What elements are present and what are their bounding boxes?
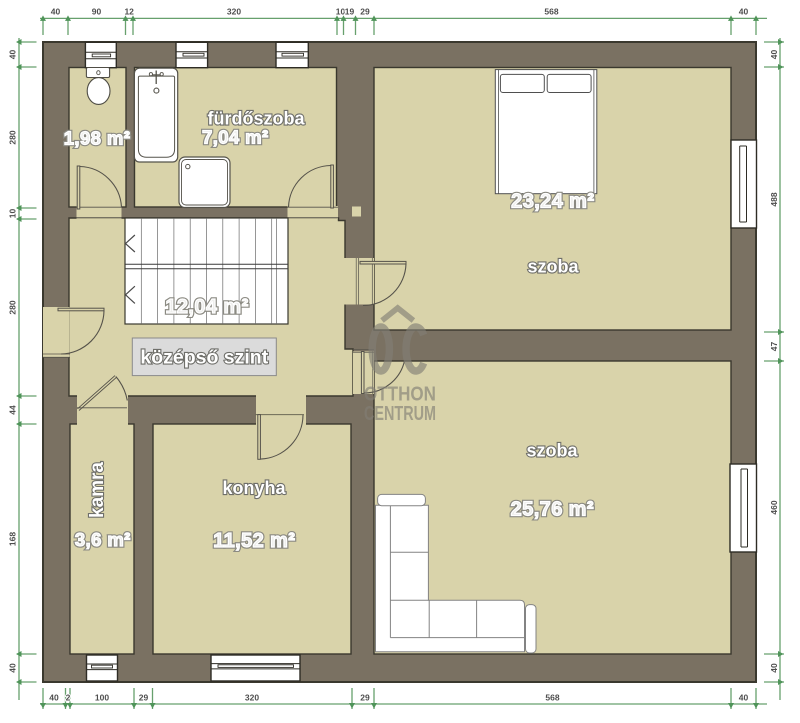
svg-text:25,76 m²: 25,76 m² (511, 499, 594, 521)
svg-text:100: 100 (95, 693, 109, 703)
svg-text:40: 40 (49, 693, 59, 703)
svg-text:40: 40 (739, 693, 749, 703)
svg-text:fürdőszoba: fürdőszoba (208, 109, 306, 129)
svg-text:CENTRUM: CENTRUM (364, 403, 436, 425)
svg-text:29: 29 (360, 7, 370, 17)
svg-text:40: 40 (769, 663, 779, 673)
svg-text:40: 40 (769, 50, 779, 60)
svg-text:568: 568 (544, 7, 558, 17)
svg-text:10: 10 (8, 209, 18, 219)
svg-text:7,04 m²: 7,04 m² (202, 127, 269, 148)
svg-text:168: 168 (8, 532, 18, 546)
svg-text:40: 40 (8, 663, 18, 673)
svg-text:320: 320 (227, 7, 241, 17)
svg-text:szoba: szoba (527, 257, 579, 277)
svg-text:280: 280 (8, 300, 18, 314)
svg-text:40: 40 (8, 50, 18, 60)
svg-text:44: 44 (8, 405, 18, 415)
svg-text:11,52 m²: 11,52 m² (213, 530, 295, 552)
svg-text:1,98 m²: 1,98 m² (64, 128, 131, 149)
svg-text:konyha: konyha (222, 478, 286, 498)
svg-text:szoba: szoba (526, 441, 578, 461)
svg-text:90: 90 (92, 7, 102, 17)
svg-text:47: 47 (769, 342, 779, 352)
svg-text:568: 568 (545, 693, 559, 703)
svg-text:2: 2 (66, 693, 71, 703)
svg-text:29: 29 (139, 693, 149, 703)
svg-text:280: 280 (8, 130, 18, 144)
svg-text:320: 320 (245, 693, 259, 703)
svg-text:488: 488 (769, 192, 779, 206)
svg-text:kamra: kamra (87, 462, 108, 518)
svg-text:40: 40 (739, 7, 749, 17)
svg-text:460: 460 (769, 500, 779, 514)
svg-text:12: 12 (124, 7, 134, 17)
svg-text:23,24 m²: 23,24 m² (511, 191, 594, 213)
svg-text:19: 19 (345, 7, 355, 17)
svg-text:középső szint: középső szint (140, 347, 268, 369)
svg-text:29: 29 (360, 693, 370, 703)
svg-text:3,6 m²: 3,6 m² (75, 529, 131, 550)
svg-text:12,04 m²: 12,04 m² (165, 296, 248, 318)
svg-text:40: 40 (51, 7, 61, 17)
